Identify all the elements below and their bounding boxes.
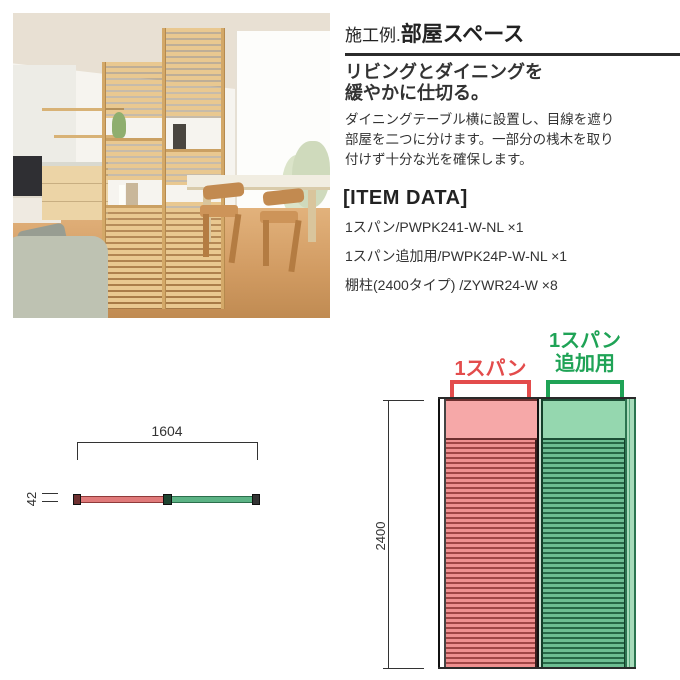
span-label: 1スパン: [448, 352, 533, 381]
description-line: 部屋を二つに分けます。一部分の桟木を取り: [345, 130, 680, 150]
photo-sofa: [13, 236, 108, 318]
photo-slat-partition: [102, 28, 226, 309]
span-bracket: [450, 380, 531, 397]
title-main: 部屋スペース: [401, 23, 524, 46]
partition-shelf: [165, 149, 223, 152]
partition-post: [162, 28, 166, 309]
frontview-left-post: [438, 399, 446, 667]
frontview-addon-open-section: [543, 399, 625, 440]
topview-post: [163, 494, 172, 505]
description-line: ダイニングテーブル横に設置し、目線を遮り: [345, 110, 680, 130]
room-photo: [13, 13, 330, 318]
topview-post: [252, 494, 260, 505]
partition-plant: [112, 112, 127, 137]
addon-label-line: 1スパン: [539, 330, 631, 353]
photo-chair-leg: [263, 220, 269, 266]
photo-kitchen-cabinet: [42, 162, 109, 220]
height-dimension-tick: [383, 400, 424, 401]
partition-slats: [102, 62, 164, 118]
subtitle: リビングとダイニングを 緩やかに仕切る。: [345, 62, 680, 104]
page-title: 施工例.部屋スペース: [345, 18, 680, 48]
item-data-heading: [ITEM DATA]: [343, 187, 678, 210]
partition-book: [119, 185, 125, 205]
title-prefix: 施工例.: [345, 26, 401, 45]
height-dimension-label: 2400: [373, 514, 387, 558]
title-divider: [345, 53, 680, 56]
partition-slats: [102, 208, 164, 309]
partition-book: [173, 124, 185, 149]
height-dimension-tick: [383, 668, 424, 669]
subtitle-line: リビングとダイニングを: [345, 62, 680, 83]
partition-post: [221, 28, 225, 309]
partition-shelf: [104, 205, 162, 208]
width-dimension-bracket: [77, 442, 258, 460]
partition-slats: [102, 140, 164, 179]
width-dimension-label: 1604: [127, 423, 207, 439]
topview-post: [73, 494, 81, 505]
subtitle-line: 緩やかに仕切る。: [345, 83, 680, 104]
depth-dimension-tick: [42, 501, 58, 502]
partition-slats: [164, 28, 226, 118]
partition-slats: [164, 202, 226, 309]
partition-book: [126, 183, 137, 205]
item-line: 棚柱(2400タイプ) /ZYWR24-W ×8: [345, 275, 680, 295]
addon-bracket: [546, 380, 624, 397]
photo-chair-leg: [203, 214, 209, 257]
description-line: 付けず十分な光を確保します。: [345, 150, 680, 170]
addon-label: 1スパン 追加用: [539, 330, 631, 376]
partition-shelf: [104, 138, 162, 141]
topview-span-bar: [77, 496, 167, 503]
description: ダイニングテーブル横に設置し、目線を遮り 部屋を二つに分けます。一部分の桟木を取…: [345, 110, 680, 170]
item-line: 1スパン/PWPK241-W-NL ×1: [345, 217, 680, 237]
topview-addon-bar: [167, 496, 257, 503]
frontview-right-post: [625, 399, 636, 667]
item-line: 1スパン追加用/PWPK24P-W-NL ×1: [345, 246, 680, 266]
depth-dimension-tick: [42, 493, 58, 494]
height-dimension-line: [388, 400, 389, 669]
photo-tv: [13, 156, 42, 196]
frontview-span-open-section: [446, 399, 537, 440]
photo-table-leg: [308, 190, 316, 242]
addon-label-line: 追加用: [539, 353, 631, 376]
frontview-panels: [438, 397, 636, 669]
depth-dimension-label: 42: [24, 480, 38, 518]
